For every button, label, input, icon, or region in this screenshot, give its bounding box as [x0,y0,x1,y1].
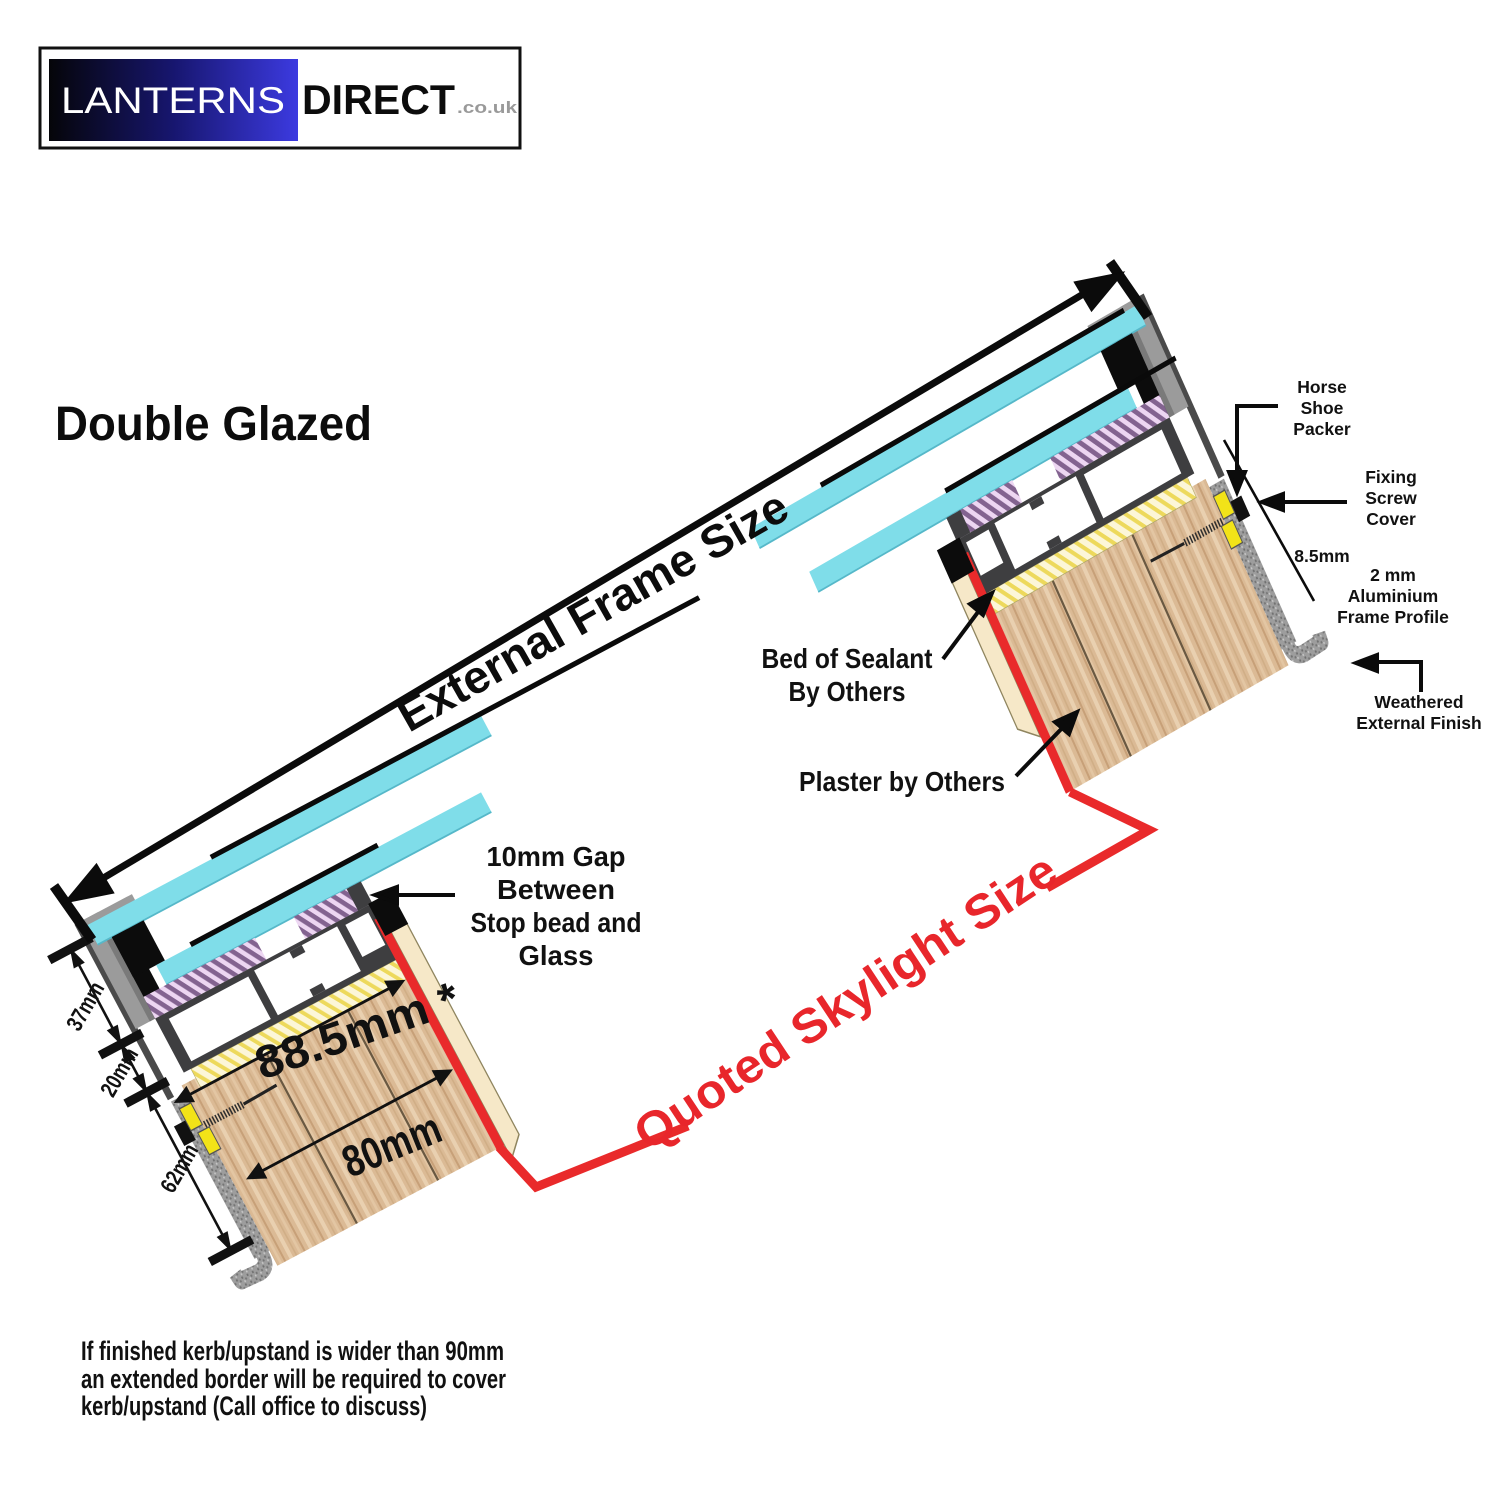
svg-text:Frame Profile: Frame Profile [1337,607,1449,627]
svg-text:Stop bead and: Stop bead and [471,907,642,938]
svg-text:External Finish: External Finish [1356,713,1481,733]
svg-text:External Frame Size: External Frame Size [388,480,797,742]
svg-text:Weathered: Weathered [1374,692,1463,712]
svg-text:DIRECT: DIRECT [302,76,455,123]
svg-text:Between: Between [497,874,615,905]
svg-text:.co.uk: .co.uk [457,98,518,117]
svg-text:Packer: Packer [1293,419,1351,439]
svg-text:2 mm: 2 mm [1370,565,1416,585]
svg-text:8.5mm: 8.5mm [1294,546,1349,566]
svg-text:Plaster by Others: Plaster by Others [799,766,1005,797]
svg-text:Screw: Screw [1365,488,1417,508]
svg-text:Double Glazed: Double Glazed [55,398,372,451]
svg-text:Horse: Horse [1297,377,1347,397]
svg-text:LANTERNS: LANTERNS [61,80,285,121]
svg-text:Fixing: Fixing [1365,467,1417,487]
svg-text:an extended border will be req: an extended border will be required to c… [81,1364,506,1394]
svg-text:By Others: By Others [789,676,906,707]
svg-text:10mm Gap: 10mm Gap [487,841,626,872]
svg-text:Bed of Sealant: Bed of Sealant [762,643,933,674]
svg-text:Glass: Glass [519,940,594,971]
svg-text:Aluminium: Aluminium [1348,586,1438,606]
svg-text:Cover: Cover [1366,509,1416,529]
svg-text:If finished kerb/upstand is wi: If finished kerb/upstand is wider than 9… [81,1336,504,1366]
svg-text:kerb/upstand (Call office to d: kerb/upstand (Call office to discuss) [81,1391,427,1421]
svg-text:Shoe: Shoe [1301,398,1344,418]
svg-text:Quoted Skylight Size: Quoted Skylight Size [625,844,1067,1161]
